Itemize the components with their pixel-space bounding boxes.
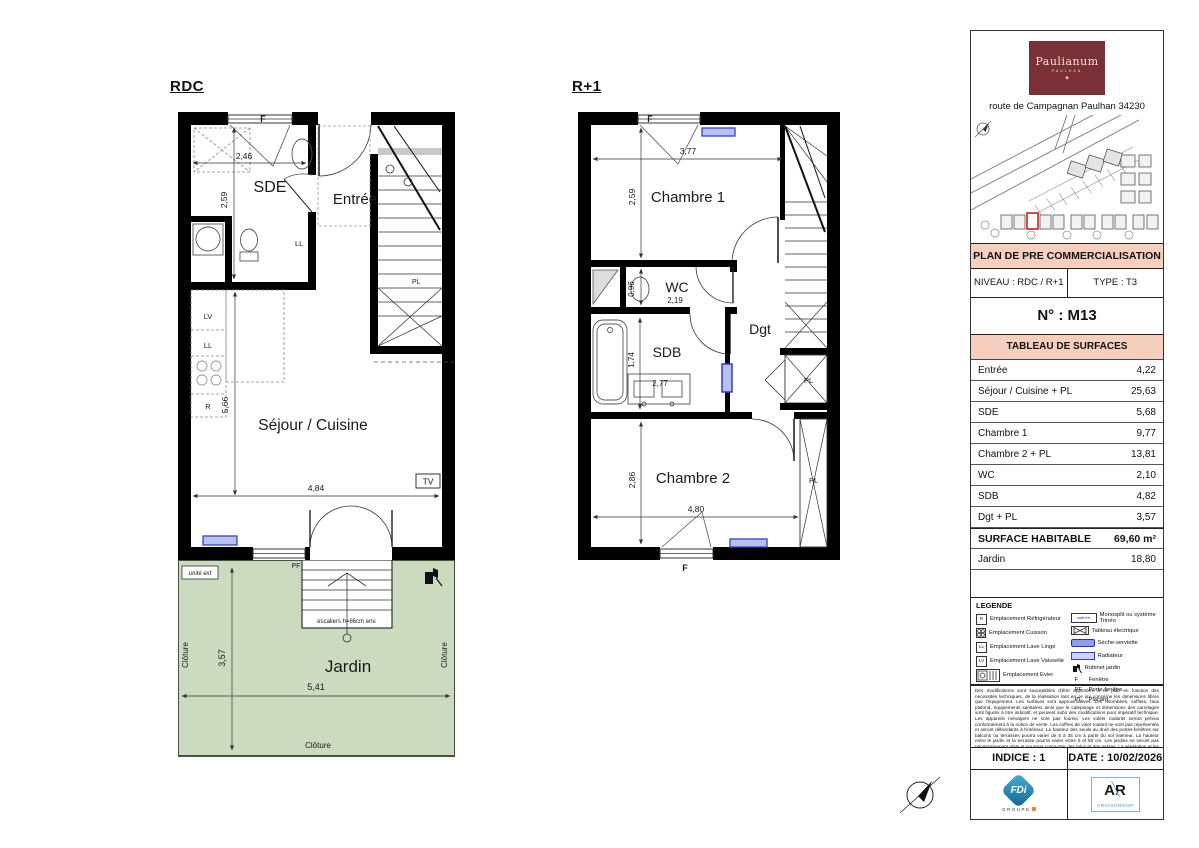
legend-item: Radiateur — [1071, 650, 1158, 663]
towel-radiator-icon — [1071, 639, 1095, 647]
tv-label: TV — [423, 477, 434, 487]
brand-logo: Paulianum PAULHAN ◆ — [1029, 41, 1105, 95]
toilet — [240, 229, 258, 261]
fdi-orange-mark — [1032, 807, 1036, 811]
date-cell: DATE : 10/02/2026 — [1067, 748, 1164, 769]
radiator-icon — [1071, 652, 1095, 660]
rdc-title: RDC — [170, 78, 204, 95]
logos-row: FDi GROUPE AR ARCHIGROUP — [971, 769, 1163, 819]
legend-abbr: F Fenêtre — [1071, 675, 1158, 685]
wc-label: WC — [665, 279, 688, 295]
dim-sdb-height: 1,74 — [627, 352, 636, 368]
legal-disclaimer: Des modifications sont susceptibles d'êt… — [971, 685, 1163, 747]
site-location-map — [971, 115, 1163, 243]
legend-item: Emplacement Evier — [976, 668, 1071, 682]
r1-title: R+1 — [572, 78, 601, 95]
rdc-r-label: R — [205, 402, 211, 411]
chambre1-label: Chambre 1 — [651, 189, 725, 206]
towel-radiator-icon — [722, 364, 732, 392]
dim-jardin-width: 5,41 — [307, 682, 325, 692]
level-cell: NIVEAU : RDC / R+1 — [971, 269, 1067, 297]
table-row: Séjour / Cuisine + PL 25,63 — [971, 381, 1163, 402]
table-row: Chambre 2 + PL 13,81 — [971, 444, 1163, 465]
entree-room-label: Entrée — [333, 191, 377, 208]
dim-jardin-height: 3,57 — [217, 649, 227, 667]
legend-title: LEGENDE — [976, 601, 1158, 610]
rdc-ll-kitchen-label: LL — [204, 341, 212, 350]
bathtub — [593, 320, 627, 404]
jardin-row: Jardin 18,80 — [971, 549, 1163, 570]
legend-item: Tableau électrique — [1071, 625, 1158, 638]
indice-date-row: INDICE : 1 DATE : 10/02/2026 — [971, 747, 1163, 769]
cloture-bottom: Clôture — [305, 741, 331, 750]
table-row: SDE 5,68 — [971, 402, 1163, 423]
rdc-floorplan: F PL — [178, 112, 455, 560]
stairs-note: escaliers h=86cm env. — [317, 619, 377, 625]
monosplit-icon: unité ext — [1071, 613, 1097, 623]
legend-box: LEGENDE R Emplacement Réfrigérateur Empl… — [971, 597, 1163, 685]
level-type-row: NIVEAU : RDC / R+1 TYPE : T3 — [971, 269, 1163, 297]
shower — [194, 128, 250, 172]
dim-sde-height: 2,59 — [219, 191, 229, 208]
plan-banner: PLAN DE PRE COMMERCIALISATION — [971, 243, 1163, 269]
r1-stairs — [785, 126, 827, 348]
info-panel: Paulianum PAULHAN ◆ route de Campagnan P… — [970, 30, 1164, 820]
garden-tap-icon — [1071, 663, 1082, 674]
north-compass-icon — [896, 772, 944, 818]
jardin-label: Jardin — [325, 657, 371, 676]
surface-table-header: TABLEAU DE SURFACES — [971, 334, 1163, 360]
r1-pl-ch2-label: PL — [809, 476, 818, 485]
rdc-stairs — [378, 176, 442, 346]
sde-room-label: SDE — [254, 179, 287, 196]
surface-total-row: SURFACE HABITABLE 69,60 m² — [971, 528, 1163, 549]
table-row: Entrée 4,22 — [971, 360, 1163, 381]
indice-cell: INDICE : 1 — [971, 748, 1067, 769]
dim-sejour-width: 4,84 — [308, 483, 325, 493]
rdc-window-label: F — [260, 114, 266, 124]
dim-wc-width: 2,19 — [667, 296, 683, 305]
radiator-icon — [730, 539, 767, 547]
cloture-left: Clôture — [181, 642, 190, 668]
washing-machine — [193, 224, 223, 255]
brand-name: Paulianum — [1029, 55, 1105, 68]
type-cell: TYPE : T3 — [1067, 269, 1164, 297]
rdc-lv-label: LV — [204, 312, 213, 321]
electrical-panel-icon — [1071, 626, 1089, 635]
table-row: SDB 4,82 — [971, 486, 1163, 507]
legend-item: LV Emplacement Lave Vaisselle — [976, 654, 1071, 668]
table-row: WC 2,10 — [971, 465, 1163, 486]
brand-ornament-icon: ◆ — [1029, 75, 1105, 81]
dim-ch1-height: 2,59 — [627, 188, 637, 205]
lot-number: N° : M13 — [971, 297, 1163, 334]
brand-subtitle: PAULHAN — [1029, 69, 1105, 73]
fdi-logo: FDi GROUPE — [971, 770, 1067, 819]
cloture-right: Clôture — [440, 642, 449, 668]
legend-item: Robinet jardin — [1071, 662, 1158, 675]
kitchen-counter — [191, 290, 284, 417]
chambre2-label: Chambre 2 — [656, 470, 730, 487]
dgt-label: Dgt — [749, 321, 771, 337]
sdb-label: SDB — [653, 344, 682, 360]
rdc-ll-sde-label: LL — [295, 239, 303, 248]
dim-ch2-height: 2,86 — [627, 471, 637, 488]
r1-pl-dgt-label: PL — [804, 376, 813, 385]
legend-item: unité ext Monosplit ou système Trinéo — [1071, 612, 1158, 625]
exterior-unit-label: unité ext — [189, 571, 212, 577]
floorplan-sheet: RDC R+1 F — [0, 0, 1199, 848]
legend-item: LL Emplacement Lave Linge — [976, 640, 1071, 654]
radiator-icon — [702, 128, 735, 136]
dim-wc-height: 0,96 — [627, 281, 636, 297]
sejour-room-label: Séjour / Cuisine — [258, 417, 367, 434]
fridge-icon: R — [976, 614, 987, 625]
dim-ch1-width: 3,77 — [680, 146, 697, 156]
table-row: Chambre 1 9,77 — [971, 423, 1163, 444]
garden-plan: escaliers h=86cm env. PF unité ext Jardi… — [178, 560, 455, 758]
pf-label: PF — [292, 563, 301, 570]
legend-item: Sèche-serviette — [1071, 637, 1158, 650]
rdc-pl-label: PL — [412, 279, 421, 286]
dim-sdb-width: 2,77 — [652, 379, 668, 388]
cooktop-icon — [197, 361, 221, 385]
spacer — [971, 570, 1163, 597]
archigroup-logo: AR ARCHIGROUP — [1067, 770, 1164, 819]
dim-sejour-height: 5,66 — [220, 396, 230, 413]
sink-icon — [976, 669, 1000, 682]
legend-item: Emplacement Cuisson — [976, 626, 1071, 640]
washer-icon: LL — [976, 642, 987, 653]
r1-window-bottom-label: F — [682, 563, 688, 573]
r1-window-top-label: F — [647, 114, 653, 124]
r1-floorplan: F Chambre 1 WC 2,19 0,9 — [578, 112, 840, 574]
radiator-icon — [203, 536, 237, 545]
dim-sde-width: 2,46 — [236, 151, 253, 161]
table-row: Dgt + PL 3,57 — [971, 507, 1163, 528]
legend-item: R Emplacement Réfrigérateur — [976, 612, 1071, 626]
cooktop-icon — [976, 628, 986, 638]
dishwasher-icon: LV — [976, 656, 987, 667]
project-address: route de Campagnan Paulhan 34230 — [971, 101, 1163, 115]
